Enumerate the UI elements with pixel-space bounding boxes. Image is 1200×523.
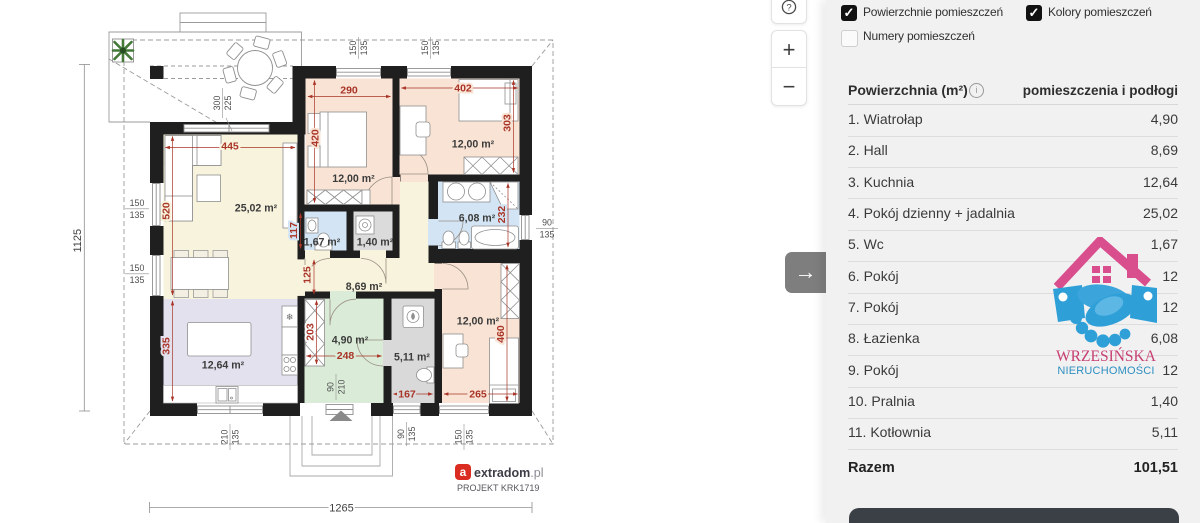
svg-text:WRZESIŃSKA: WRZESIŃSKA: [1056, 348, 1157, 365]
svg-text:232: 232: [496, 206, 508, 224]
svg-text:NIERUCHOMOŚCI: NIERUCHOMOŚCI: [1057, 364, 1154, 377]
svg-text:135: 135: [231, 430, 241, 445]
svg-text:117: 117: [288, 222, 300, 239]
svg-text:1,40 m²: 1,40 m²: [357, 237, 394, 249]
svg-text:290: 290: [340, 85, 358, 97]
svg-text:135: 135: [407, 427, 417, 442]
svg-text:265: 265: [469, 389, 487, 401]
svg-text:5,11 m²: 5,11 m²: [394, 352, 430, 364]
svg-text:90: 90: [542, 218, 552, 228]
svg-text:25,02 m²: 25,02 m²: [235, 203, 278, 215]
svg-text:135: 135: [130, 275, 145, 285]
svg-text:303: 303: [502, 114, 514, 132]
svg-text:1125: 1125: [72, 229, 84, 253]
svg-text:445: 445: [221, 141, 239, 153]
svg-text:90: 90: [326, 382, 336, 392]
svg-text:135: 135: [431, 41, 441, 56]
svg-text:8,69 m²: 8,69 m²: [346, 281, 383, 293]
svg-text:420: 420: [310, 129, 322, 147]
svg-text:210: 210: [337, 380, 347, 395]
svg-text:150: 150: [454, 430, 464, 445]
svg-text:225: 225: [223, 96, 233, 111]
svg-text:12,00 m²: 12,00 m²: [452, 139, 495, 151]
svg-text:150: 150: [130, 263, 145, 273]
svg-text:90: 90: [396, 429, 406, 439]
svg-text:1,67 m²: 1,67 m²: [304, 237, 341, 249]
svg-text:167: 167: [398, 389, 416, 401]
svg-text:1265: 1265: [329, 503, 353, 515]
svg-text:❄: ❄: [286, 312, 294, 322]
svg-text:150: 150: [420, 41, 430, 56]
svg-text:203: 203: [305, 323, 317, 341]
svg-text:135: 135: [465, 430, 475, 445]
svg-text:12,64 m²: 12,64 m²: [202, 360, 245, 372]
svg-text:335: 335: [161, 337, 173, 355]
svg-text:12,00 m²: 12,00 m²: [332, 173, 375, 185]
svg-text:4,90 m²: 4,90 m²: [332, 335, 369, 347]
svg-text:248: 248: [337, 350, 355, 362]
svg-text:135: 135: [540, 230, 555, 240]
svg-text:125: 125: [302, 266, 314, 284]
svg-text:?: ?: [786, 3, 791, 14]
svg-text:135: 135: [130, 210, 145, 220]
svg-text:460: 460: [495, 325, 507, 343]
svg-text:300: 300: [212, 96, 222, 111]
svg-text:520: 520: [161, 202, 173, 220]
svg-text:12,00 m²: 12,00 m²: [457, 316, 500, 328]
svg-text:6,08 m²: 6,08 m²: [459, 213, 496, 225]
svg-text:402: 402: [454, 83, 472, 95]
svg-text:135: 135: [359, 41, 369, 56]
svg-text:150: 150: [348, 41, 358, 56]
svg-text:210: 210: [220, 430, 230, 445]
svg-text:150: 150: [130, 198, 145, 208]
